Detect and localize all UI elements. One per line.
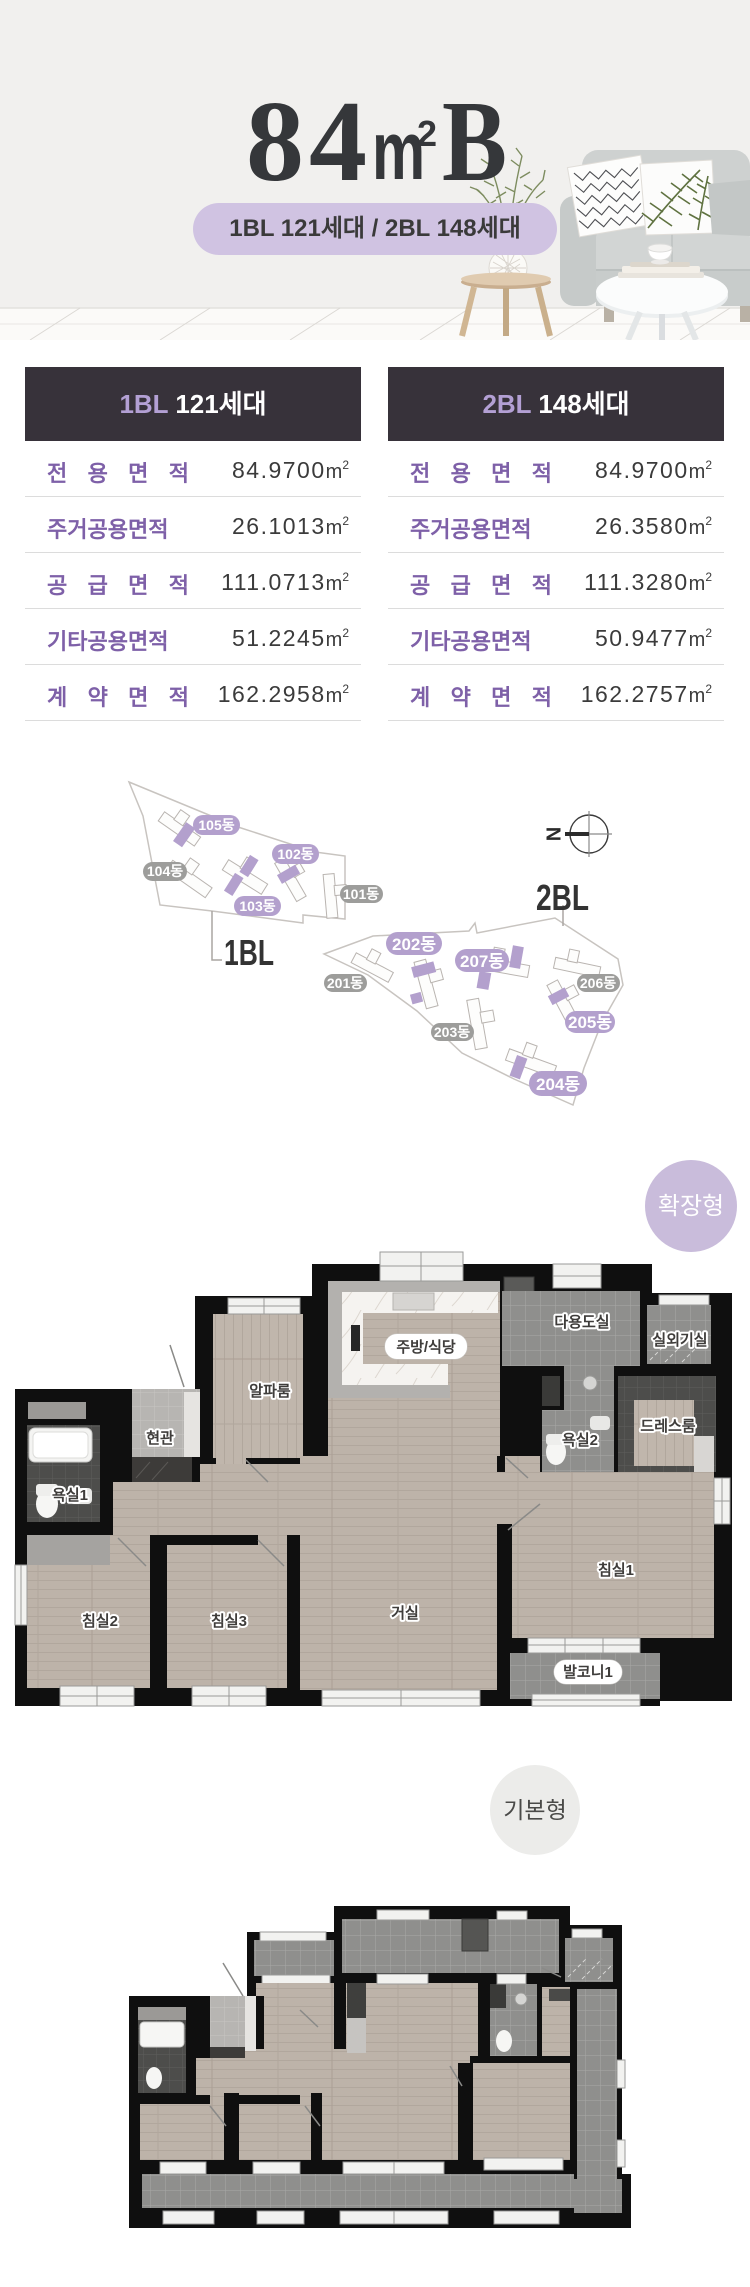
svg-text:102동: 102동 <box>277 846 313 862</box>
svg-text:207동: 207동 <box>460 952 504 971</box>
svg-text:202동: 202동 <box>392 935 436 954</box>
svg-text:욕실1: 욕실1 <box>52 1487 88 1504</box>
svg-text:알파룸: 알파룸 <box>249 1383 291 1400</box>
svg-text:204동: 204동 <box>536 1075 580 1094</box>
svg-text:84: 84 <box>246 78 372 206</box>
svg-text:104동: 104동 <box>147 863 183 879</box>
svg-text:주방/식당: 주방/식당 <box>396 1338 456 1356</box>
svg-text:드레스룸: 드레스룸 <box>640 1418 695 1435</box>
svg-text:침실3: 침실3 <box>211 1613 247 1630</box>
svg-text:101동: 101동 <box>343 886 379 902</box>
svg-text:B: B <box>442 78 507 206</box>
svg-text:욕실2: 욕실2 <box>562 1432 598 1449</box>
svg-text:침실2: 침실2 <box>82 1613 118 1630</box>
svg-text:확장형: 확장형 <box>658 1193 724 1220</box>
svg-text:105동: 105동 <box>198 817 234 833</box>
svg-text:다용도실: 다용도실 <box>554 1314 609 1331</box>
svg-text:206동: 206동 <box>580 975 616 991</box>
svg-text:N: N <box>543 827 565 841</box>
svg-text:205동: 205동 <box>568 1013 612 1032</box>
svg-text:침실1: 침실1 <box>598 1562 634 1579</box>
svg-text:2: 2 <box>417 113 437 154</box>
svg-text:103동: 103동 <box>239 898 275 914</box>
svg-text:거실: 거실 <box>391 1605 419 1622</box>
svg-text:2BL: 2BL <box>536 877 589 918</box>
svg-text:현관: 현관 <box>146 1430 174 1447</box>
svg-text:1BL: 1BL <box>224 932 274 973</box>
svg-text:기본형: 기본형 <box>503 1797 566 1823</box>
svg-text:203동: 203동 <box>434 1024 470 1040</box>
svg-text:201동: 201동 <box>327 975 363 991</box>
svg-text:실외기실: 실외기실 <box>652 1331 707 1349</box>
svg-text:발코니1: 발코니1 <box>563 1664 613 1681</box>
